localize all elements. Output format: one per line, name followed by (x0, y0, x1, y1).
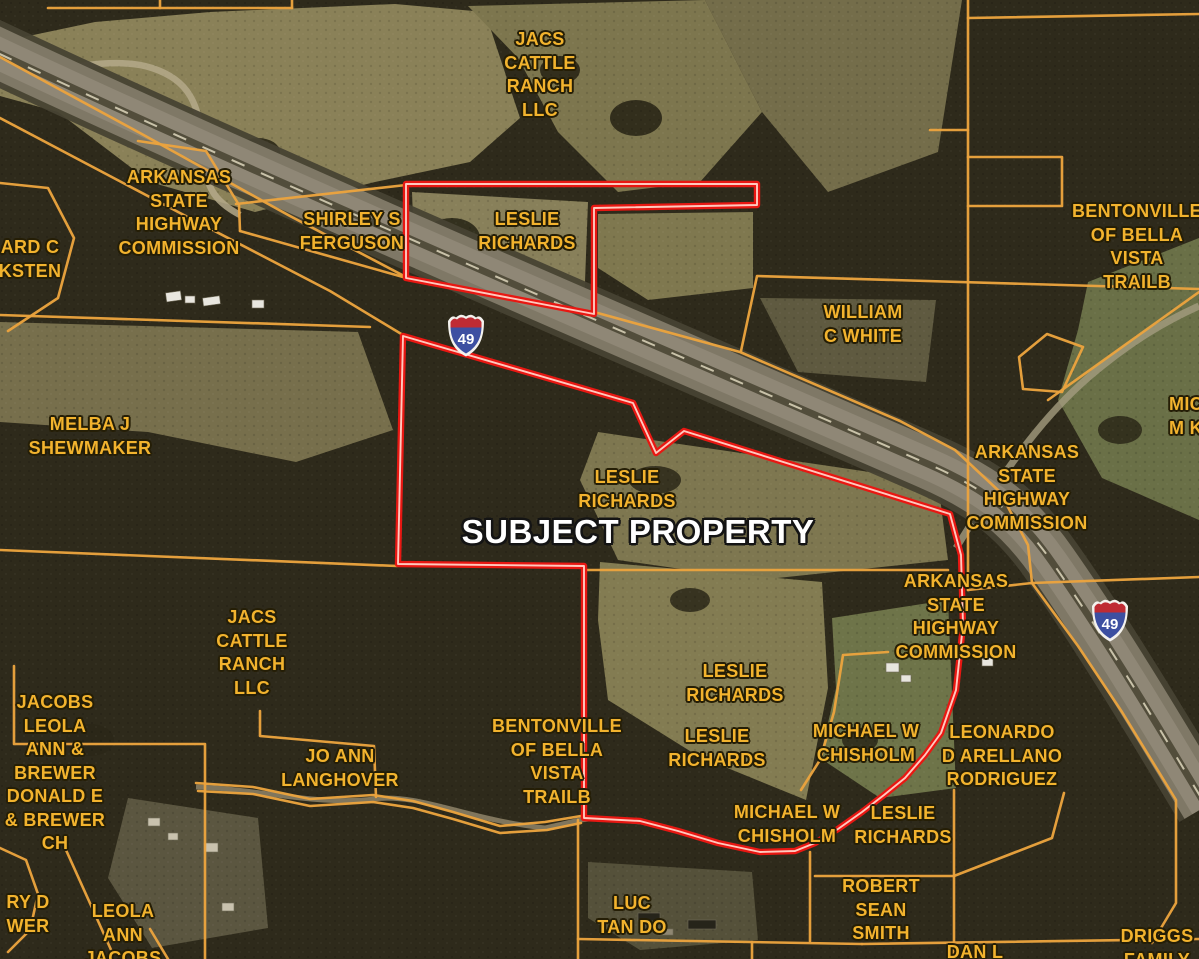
label-line: SEAN (842, 899, 920, 923)
label-line: LEONARDO (942, 721, 1062, 745)
label-line: JACS (504, 28, 575, 52)
label-line: LUC (597, 892, 666, 916)
label-line: MELBA J (29, 413, 152, 437)
label-line: RICHARDS (686, 684, 783, 708)
label-line: ARKANSAS (895, 570, 1016, 594)
label-line: SHEWMAKER (29, 437, 152, 461)
parcel-boundary-line (236, 185, 406, 204)
label-arkansas-shc-right-lower: ARKANSASSTATEHIGHWAYCOMMISSION (895, 570, 1016, 664)
label-line: M K (1169, 417, 1199, 441)
label-line: CH (5, 832, 105, 856)
label-line: COMMISSION (966, 512, 1087, 536)
label-line: HIGHWAY (895, 617, 1016, 641)
interstate-49-shield: 49 (1090, 596, 1130, 643)
label-leola-ann-jacobs: LEOLAANNJACOBS (85, 900, 162, 959)
label-melba-j-shewmaker: MELBA JSHEWMAKER (29, 413, 152, 460)
label-line: DRIGGS (1121, 925, 1194, 949)
label-line: CHISHOLM (813, 744, 919, 768)
label-line: TAN DO (597, 916, 666, 940)
label-line: VISTA (492, 762, 622, 786)
label-dan-l-partial: DAN L (947, 941, 1004, 959)
subject-property-boundary (398, 336, 963, 852)
label-ry-d-wer-partial: RY DWER (6, 891, 49, 938)
label-line: WER (6, 915, 49, 939)
label-line: ARKANSAS (966, 441, 1087, 465)
label-jacs-cattle-ranch-left: JACSCATTLERANCHLLC (216, 606, 287, 700)
label-line: ARD C (0, 236, 61, 260)
label-line: CHISHOLM (734, 825, 840, 849)
parcel-boundary-line (968, 157, 1062, 206)
label-line: JACOBS (5, 691, 105, 715)
label-line: JACOBS (85, 947, 162, 959)
label-line: ANN & (5, 738, 105, 762)
label-line: ARKANSAS (118, 166, 239, 190)
label-line: LESLIE (668, 725, 765, 749)
label-jacobs-leola-brewer: JACOBSLEOLAANN &BREWERDONALD E& BREWERCH (5, 691, 105, 856)
label-arkansas-shc-topleft: ARKANSASSTATEHIGHWAYCOMMISSION (118, 166, 239, 260)
label-line: LESLIE (854, 802, 951, 826)
label-line: SHIRLEY S (300, 208, 404, 232)
label-jacs-cattle-ranch-top: JACSCATTLERANCHLLC (504, 28, 575, 122)
label-leslie-richards-bottomright: LESLIERICHARDS (854, 802, 951, 849)
label-line: BENTONVILLE (1072, 200, 1199, 224)
label-line: RODRIGUEZ (942, 768, 1062, 792)
label-line: WILLIAM (823, 301, 902, 325)
label-line: TRAILB (492, 786, 622, 810)
label-leslie-richards-center: LESLIERICHARDS (578, 466, 675, 513)
label-line: LANGHOVER (281, 769, 399, 793)
label-jo-ann-langhover: JO ANNLANGHOVER (281, 745, 399, 792)
label-line: DAN L (947, 941, 1004, 959)
label-line: RANCH (504, 75, 575, 99)
label-line: CATTLE (216, 630, 287, 654)
interstate-49-shield: 49 (446, 311, 486, 358)
property-map: JACSCATTLERANCHLLCARKANSASSTATEHIGHWAYCO… (0, 0, 1199, 959)
label-line: TRAILB (1072, 271, 1199, 295)
label-line: BREWER (5, 762, 105, 786)
label-leslie-richards-top: LESLIERICHARDS (478, 208, 575, 255)
parcel-boundary-line (0, 550, 397, 566)
label-leslie-richards-mid1: LESLIERICHARDS (686, 660, 783, 707)
label-line: C WHITE (823, 325, 902, 349)
label-line: CATTLE (504, 52, 575, 76)
label-luc-tan-do: LUCTAN DO (597, 892, 666, 939)
label-ard-c-ksten-partial: ARD CKSTEN (0, 236, 61, 283)
route-number: 49 (1102, 616, 1119, 633)
label-line: LESLIE (478, 208, 575, 232)
label-line: ANN (85, 924, 162, 948)
label-leslie-richards-mid2: LESLIERICHARDS (668, 725, 765, 772)
label-line: COMMISSION (118, 237, 239, 261)
label-line: OF BELLA (1072, 224, 1199, 248)
label-line: OF BELLA (492, 739, 622, 763)
label-line: D ARELLANO (942, 745, 1062, 769)
label-mic-mk-partial: MICM K (1169, 393, 1199, 440)
label-bentonville-bella-vista-bottom: BENTONVILLEOF BELLAVISTATRAILB (492, 715, 622, 809)
label-line: MICHAEL W (813, 720, 919, 744)
label-line: LEOLA (5, 715, 105, 739)
subject-property-boundary (398, 336, 963, 852)
label-line: STATE (895, 594, 1016, 618)
label-line: STATE (118, 190, 239, 214)
label-line: COMMISSION (895, 641, 1016, 665)
label-line: DONALD E (5, 785, 105, 809)
label-line: JACS (216, 606, 287, 630)
label-line: SMITH (842, 922, 920, 946)
label-line: SUBJECT PROPERTY (462, 514, 815, 550)
label-line: RICHARDS (668, 749, 765, 773)
label-line: KSTEN (0, 260, 61, 284)
route-number: 49 (458, 331, 475, 348)
label-line: LEOLA (85, 900, 162, 924)
parcel-boundary-line (0, 315, 370, 327)
label-line: LLC (216, 677, 287, 701)
label-line: LLC (504, 99, 575, 123)
label-line: VISTA (1072, 247, 1199, 271)
label-leonardo-d-arellano-rodriguez: LEONARDOD ARELLANORODRIGUEZ (942, 721, 1062, 792)
label-michael-w-chisholm-upper: MICHAEL WCHISHOLM (813, 720, 919, 767)
label-line: RY D (6, 891, 49, 915)
label-line: FAMILY (1121, 949, 1194, 959)
label-line: & BREWER (5, 809, 105, 833)
label-shirley-s-ferguson: SHIRLEY SFERGUSON (300, 208, 404, 255)
label-william-c-white: WILLIAMC WHITE (823, 301, 902, 348)
label-line: HIGHWAY (966, 488, 1087, 512)
label-line: JO ANN (281, 745, 399, 769)
subject-property-boundary (406, 184, 757, 314)
label-line: ROBERT (842, 875, 920, 899)
label-bentonville-bella-vista-topright: BENTONVILLEOF BELLAVISTATRAILB (1072, 200, 1199, 294)
label-line: HIGHWAY (118, 213, 239, 237)
label-line: MICHAEL W (734, 801, 840, 825)
label-arkansas-shc-right-upper: ARKANSASSTATEHIGHWAYCOMMISSION (966, 441, 1087, 535)
label-line: MIC (1169, 393, 1199, 417)
label-line: FERGUSON (300, 232, 404, 256)
label-line: RICHARDS (578, 490, 675, 514)
label-line: LESLIE (686, 660, 783, 684)
label-line: STATE (966, 465, 1087, 489)
label-driggs-family-partial: DRIGGSFAMILY (1121, 925, 1194, 959)
label-line: LESLIE (578, 466, 675, 490)
label-line: RICHARDS (854, 826, 951, 850)
label-michael-w-chisholm-lower: MICHAEL WCHISHOLM (734, 801, 840, 848)
parcel-boundary-line (1048, 292, 1199, 400)
label-line: RANCH (216, 653, 287, 677)
parcel-boundary-line (968, 14, 1199, 18)
label-subject-property: SUBJECT PROPERTY (462, 514, 815, 550)
label-line: BENTONVILLE (492, 715, 622, 739)
label-robert-sean-smith: ROBERTSEANSMITH (842, 875, 920, 946)
label-line: RICHARDS (478, 232, 575, 256)
parcel-boundary-line (578, 939, 862, 944)
